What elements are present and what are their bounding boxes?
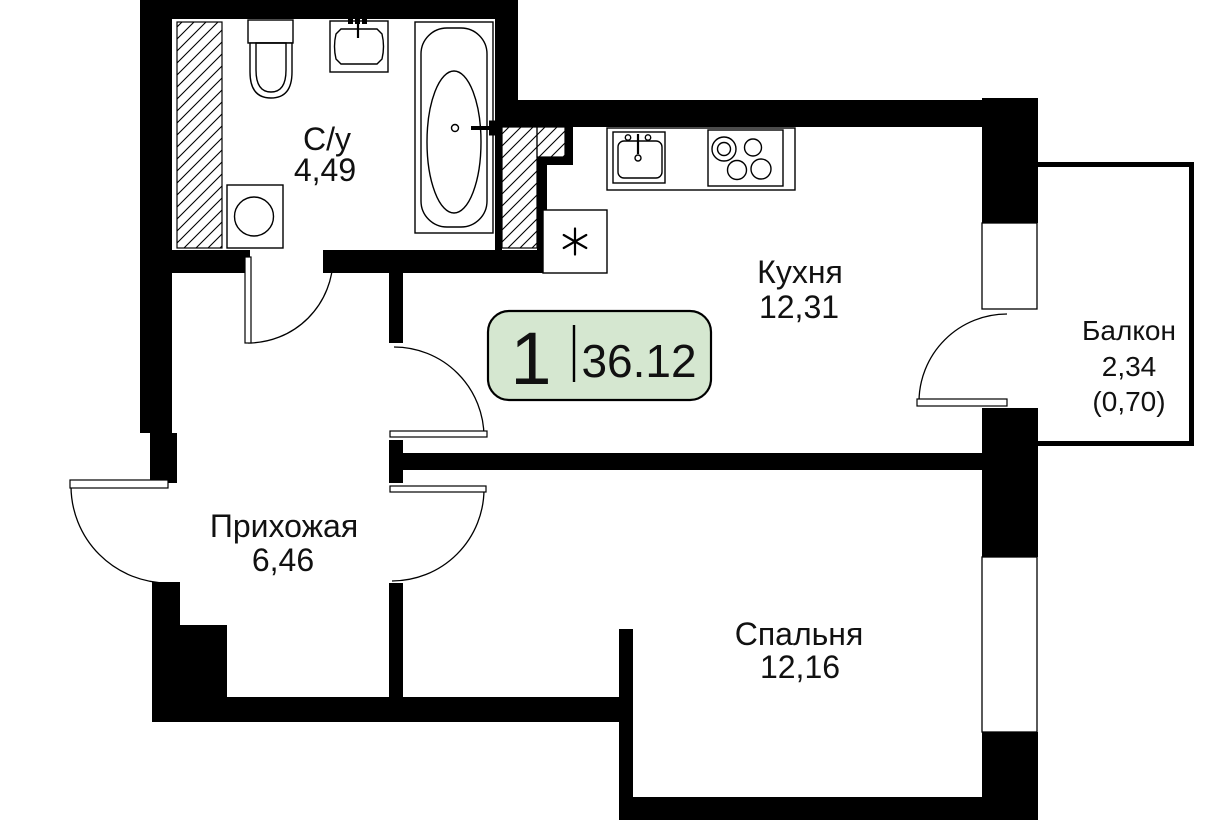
badge-room-count: 1 xyxy=(510,317,551,400)
room-label-bedroom: Спальня xyxy=(735,616,864,652)
kitchen-door-leaf xyxy=(390,431,487,437)
room-label-hallway: Прихожая xyxy=(210,508,358,544)
balcony-wall-bottom xyxy=(1038,441,1194,446)
room-area-hallway: 6,46 xyxy=(252,542,314,578)
bedroom-window xyxy=(982,557,1037,732)
kitchen-sink-knob xyxy=(645,135,650,140)
wall-top xyxy=(140,0,518,19)
toilet-tank xyxy=(248,20,293,43)
shaft-hatch-entry xyxy=(167,653,198,697)
bathtub-faucet-valve xyxy=(489,121,498,136)
toilet-icon xyxy=(248,20,293,98)
wall-kitchen-top xyxy=(518,100,1038,127)
wall-bath-bottom-right xyxy=(323,250,548,273)
washing-machine-body xyxy=(227,185,283,248)
badge-total-area: 36.12 xyxy=(581,335,696,387)
washbasin-handle xyxy=(355,18,360,24)
wall-bath-bottom-left xyxy=(140,250,250,273)
kitchen-sink-knob xyxy=(625,135,630,140)
balcony-wall-top xyxy=(1038,162,1194,167)
wall-bedroom-bottom xyxy=(619,797,1038,820)
wall-step-column xyxy=(495,19,518,127)
stove-icon xyxy=(708,130,783,186)
washbasin-handle xyxy=(348,18,353,24)
wall-left-mid xyxy=(150,433,177,483)
wall-right-c xyxy=(982,732,1038,820)
room-area-kitchen: 12,31 xyxy=(759,289,839,325)
bathtub-faucet xyxy=(471,126,491,130)
room-label-kitchen: Кухня xyxy=(757,254,843,290)
kitchen-sink-icon xyxy=(613,132,665,183)
wall-shaft-border-h xyxy=(537,157,573,165)
washing-machine-icon xyxy=(227,185,283,248)
appliance-marker xyxy=(543,210,607,273)
balcony-door-leaf xyxy=(917,399,1007,406)
entrance-door-arc xyxy=(71,486,168,583)
bathroom-door-leaf xyxy=(245,257,251,343)
wall-central-a xyxy=(389,273,403,343)
wall-bedroom-left xyxy=(619,629,633,820)
washbasin-icon xyxy=(330,18,388,72)
wall-central-b xyxy=(389,440,403,483)
wall-tub-right xyxy=(495,127,502,250)
shaft-hatch-kitchen-a xyxy=(502,127,537,248)
shaft-hatch-bathroom xyxy=(177,22,222,248)
wall-central-c xyxy=(389,583,403,703)
bedroom-door-leaf xyxy=(390,486,486,492)
balcony-door-window xyxy=(982,223,1037,309)
wall-left-upper xyxy=(140,0,172,433)
kitchen-sink-drain xyxy=(635,155,641,161)
kitchen-door-arc xyxy=(394,347,484,437)
balcony-wall-right xyxy=(1189,162,1194,446)
wall-right-b xyxy=(982,408,1038,557)
bedroom-door-arc xyxy=(392,489,484,581)
walls xyxy=(140,0,1038,820)
shaft-hatch-kitchen-b xyxy=(537,127,565,157)
balcony-door-arc xyxy=(919,314,1007,402)
room-area-bedroom: 12,16 xyxy=(760,649,840,685)
floor-plan: 1 36.12 С/у 4,49 Кухня 12,31 Прихожая 6,… xyxy=(0,0,1219,820)
room-area-balcony: 2,34 xyxy=(1102,351,1157,382)
entrance-door-leaf xyxy=(70,480,168,488)
bathtub-icon xyxy=(415,22,498,233)
room-area-coeff-balcony: (0,70) xyxy=(1092,386,1165,417)
room-area-bathroom: 4,49 xyxy=(294,152,356,188)
area-badge: 1 36.12 xyxy=(488,311,711,400)
bathroom-door-arc xyxy=(248,258,333,343)
room-label-balcony: Балкон xyxy=(1082,315,1176,346)
wall-mid-horizontal xyxy=(403,453,982,470)
washbasin-handle xyxy=(362,18,367,24)
wall-shaft-border-v1 xyxy=(565,127,573,158)
